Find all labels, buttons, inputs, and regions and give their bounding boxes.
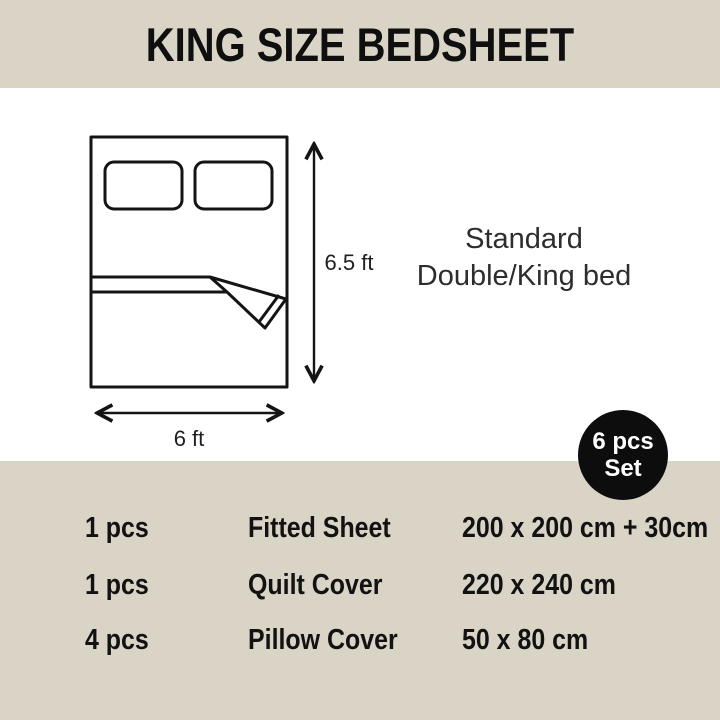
bed-type-caption: Standard Double/King bed [396, 221, 652, 295]
set-count-badge: 6 pcs Set [578, 410, 668, 500]
bed-diagram: 6.5 ft 6 ft [0, 0, 720, 720]
bed-outline [91, 137, 287, 387]
width-dimension-label: 6 ft [174, 426, 205, 451]
bed-type-caption-line1: Standard [396, 221, 652, 258]
set-count-badge-line2: Set [604, 455, 641, 482]
bed-type-caption-line2: Double/King bed [396, 258, 652, 295]
height-dimension-label: 6.5 ft [325, 250, 374, 275]
set-count-badge-line1: 6 pcs [592, 428, 653, 455]
product-infographic: KING SIZE BEDSHEET 6.5 ft 6 ft Standard … [0, 0, 720, 720]
